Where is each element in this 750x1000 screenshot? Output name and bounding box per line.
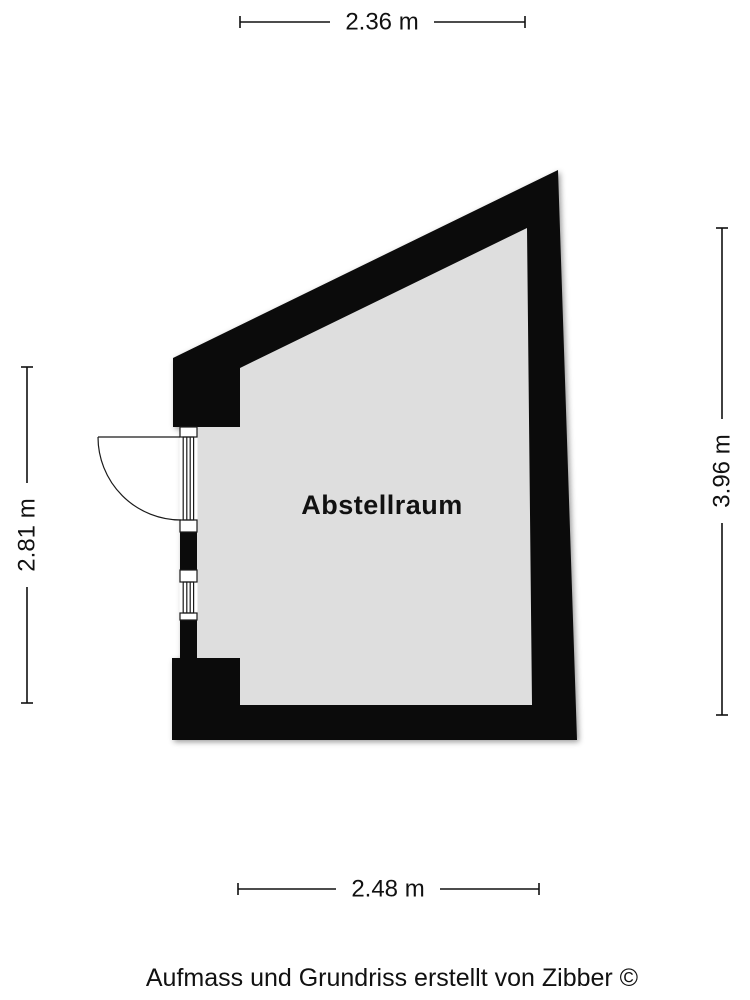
- dimension-label-top: 2.36 m: [345, 9, 418, 36]
- dimension-label-left: 2.81 m: [14, 498, 41, 571]
- dimension-top: 2.36 m: [240, 6, 525, 38]
- door-opening: [180, 427, 198, 532]
- door-swing-arc: [98, 437, 181, 520]
- dimension-right: 3.96 m: [705, 228, 739, 715]
- window-symbol: [180, 570, 198, 620]
- floorplan-canvas: 2.36 m 2.48 m 2.81 m 3.96 m Abstell: [0, 0, 750, 1000]
- dimension-left: 2.81 m: [10, 367, 44, 703]
- floorplan-page: 2.36 m 2.48 m 2.81 m 3.96 m Abstell: [0, 0, 750, 1000]
- room-label: Abstellraum: [301, 490, 463, 520]
- dimension-label-bottom: 2.48 m: [351, 876, 424, 903]
- door-symbol: [98, 427, 198, 532]
- dimension-bottom: 2.48 m: [238, 873, 539, 905]
- footer-credit: Aufmass und Grundriss erstellt von Zibbe…: [146, 964, 639, 992]
- dimension-label-right: 3.96 m: [709, 434, 736, 507]
